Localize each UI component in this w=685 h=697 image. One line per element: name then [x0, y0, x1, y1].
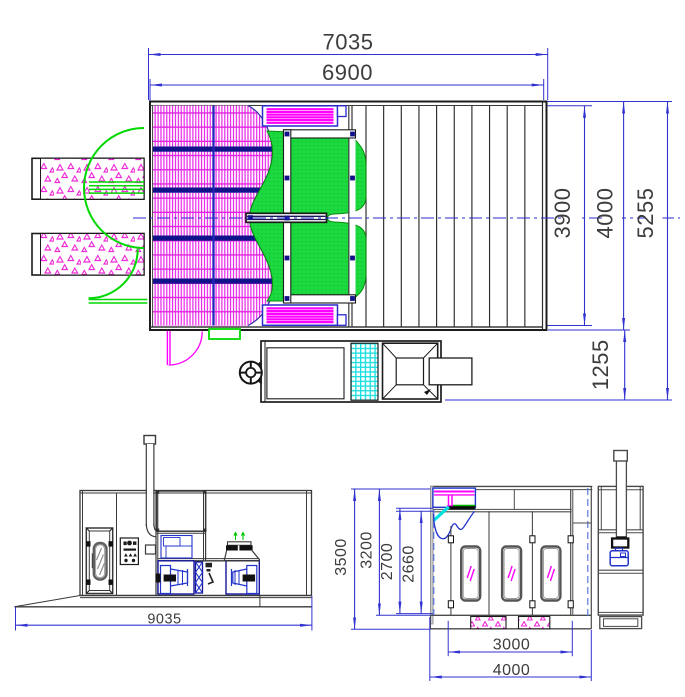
svg-text:4000: 4000: [593, 188, 618, 239]
svg-text:3500: 3500: [333, 538, 350, 576]
svg-text:3000: 3000: [493, 637, 531, 654]
svg-text:2660: 2660: [401, 545, 418, 583]
svg-text:7035: 7035: [323, 30, 374, 55]
svg-text:1255: 1255: [588, 339, 613, 390]
svg-text:4000: 4000: [493, 662, 531, 679]
svg-text:9035: 9035: [147, 612, 181, 628]
svg-text:5255: 5255: [633, 188, 658, 239]
svg-text:3200: 3200: [359, 531, 376, 569]
svg-text:2700: 2700: [379, 543, 396, 581]
svg-text:6900: 6900: [322, 60, 373, 85]
svg-text:3900: 3900: [550, 188, 575, 239]
